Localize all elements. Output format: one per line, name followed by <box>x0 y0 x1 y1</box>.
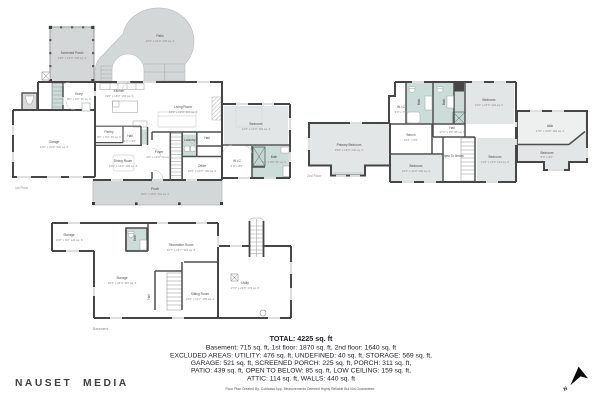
svg-text:Hall: Hall <box>127 134 133 138</box>
svg-text:Laundry: Laundry <box>184 138 196 142</box>
svg-text:Bench: Bench <box>406 133 415 137</box>
svg-text:6'0" x 9'0": 6'0" x 9'0" <box>541 155 554 159</box>
svg-text:Entry: Entry <box>75 92 83 96</box>
svg-text:Living Room: Living Room <box>174 105 192 109</box>
svg-text:8'0" x 5'0" 40 sq. ft: 8'0" x 5'0" 40 sq. ft <box>97 135 121 139</box>
svg-text:Bath: Bath <box>442 98 446 105</box>
svg-text:12'0" x 13'0" 154 sq. ft: 12'0" x 13'0" 154 sq. ft <box>242 127 271 131</box>
svg-text:5'0" x 8'0": 5'0" x 8'0" <box>231 164 244 168</box>
svg-text:19'0" x 12'0" 225 sq. ft: 19'0" x 12'0" 225 sq. ft <box>58 56 87 60</box>
svg-text:10'0" x 5'0": 10'0" x 5'0" <box>404 138 418 142</box>
svg-text:Pantry: Pantry <box>104 130 114 134</box>
svg-text:4'0" x 5'0": 4'0" x 5'0" <box>124 139 137 143</box>
svg-text:16'0" x 8'0" 124 sq. ft: 16'0" x 8'0" 124 sq. ft <box>56 238 83 242</box>
svg-text:PATIO: 439 sq. ft, OPEN TO BEL: PATIO: 439 sq. ft, OPEN TO BELOW: 85 sq.… <box>191 368 411 375</box>
svg-text:14'0" x 14'0" 196 sq. ft: 14'0" x 14'0" 196 sq. ft <box>109 164 138 168</box>
svg-text:24'0" x 20'0" 520 sq. ft: 24'0" x 20'0" 520 sq. ft <box>40 145 69 149</box>
svg-text:Sitting Room: Sitting Room <box>191 292 210 296</box>
svg-text:Garage: Garage <box>49 140 60 144</box>
svg-text:1st Floor: 1st Floor <box>15 186 29 190</box>
svg-text:Bedroom: Bedroom <box>483 98 496 102</box>
svg-text:20'0" x 21'0" 439 sq. ft: 20'0" x 21'0" 439 sq. ft <box>146 39 175 43</box>
svg-text:Storage: Storage <box>116 276 127 280</box>
svg-text:27'0" x 22'8" 476 sq. ft: 27'0" x 22'8" 476 sq. ft <box>231 286 260 290</box>
svg-text:11'0" x 13'0" 143 sq. ft: 11'0" x 13'0" 143 sq. ft <box>475 103 504 107</box>
svg-text:Foyer: Foyer <box>155 150 164 154</box>
svg-text:15'0" x 10'7" 159 sq. ft: 15'0" x 10'7" 159 sq. ft <box>186 297 215 301</box>
svg-text:ATTIC: 114 sq. ft, WALLS: 440: ATTIC: 114 sq. ft, WALLS: 440 sq. ft <box>247 375 355 382</box>
svg-text:Bedroom: Bedroom <box>410 164 423 168</box>
svg-text:Bath: Bath <box>417 98 421 105</box>
svg-text:Floor Plan Created By: Cubicas: Floor Plan Created By: Cubicasa App. Mea… <box>226 387 375 391</box>
svg-text:2nd Floor: 2nd Floor <box>307 174 322 178</box>
svg-text:6'0" x 7'0": 6'0" x 7'0" <box>395 110 408 114</box>
svg-text:Bath: Bath <box>133 234 137 241</box>
svg-text:Porch: Porch <box>151 187 160 191</box>
svg-text:GARAGE: 521 sq. ft, SCREENED P: GARAGE: 521 sq. ft, SCREENED PORCH: 225 … <box>191 360 412 367</box>
svg-text:Patio: Patio <box>156 34 163 38</box>
svg-text:Storage: Storage <box>63 233 74 237</box>
svg-text:Bedroom: Bedroom <box>250 122 263 126</box>
svg-text:12'0" x 11'0" 132 sq. ft: 12'0" x 11'0" 132 sq. ft <box>402 169 431 173</box>
svg-text:9'0" x 9'0" 81 sq. ft: 9'0" x 9'0" 81 sq. ft <box>262 160 286 164</box>
svg-text:W.I.C: W.I.C <box>233 159 241 163</box>
svg-text:Hall: Hall <box>204 136 210 140</box>
svg-text:15'0" x 18'0" 240 sq. ft: 15'0" x 18'0" 240 sq. ft <box>335 148 364 152</box>
svg-text:16'0" x 19'0" 304 sq. ft: 16'0" x 19'0" 304 sq. ft <box>169 110 198 114</box>
svg-text:Primary Bedroom: Primary Bedroom <box>337 143 362 147</box>
svg-text:22'7" x 14'7" 325 sq. ft: 22'7" x 14'7" 325 sq. ft <box>167 248 196 252</box>
svg-text:Screened Porch: Screened Porch <box>61 51 84 55</box>
svg-text:10'0" x 10'0" 100 sq. ft: 10'0" x 10'0" 100 sq. ft <box>188 169 217 173</box>
svg-text:16'4" x 24'4" 397 sq. ft: 16'4" x 24'4" 397 sq. ft <box>108 281 137 285</box>
svg-text:Hall: Hall <box>147 294 151 300</box>
svg-text:Utility: Utility <box>241 281 249 285</box>
svg-text:Dining Room: Dining Room <box>114 159 133 163</box>
svg-text:TOTAL: 4225 sq. ft: TOTAL: 4225 sq. ft <box>270 334 333 343</box>
svg-text:17'0" x 10'0" 104 sq. ft: 17'0" x 10'0" 104 sq. ft <box>536 129 565 133</box>
svg-text:EXCLUDED AREAS: UTILITY: 476 s: EXCLUDED AREAS: UTILITY: 476 sq. ft, UND… <box>170 352 432 359</box>
svg-text:Basement: Basement <box>93 327 108 331</box>
svg-text:Kitchen: Kitchen <box>114 89 125 93</box>
svg-text:6'0" x 12'0" 72 sq. ft: 6'0" x 12'0" 72 sq. ft <box>146 155 172 159</box>
svg-text:Basement: 715 sq. ft, 1st floo: Basement: 715 sq. ft, 1st floor: 1870 sq… <box>206 345 396 352</box>
svg-text:16'0" x 26'0" 311 sq. ft: 16'0" x 26'0" 311 sq. ft <box>141 192 170 196</box>
svg-text:Office: Office <box>198 164 206 168</box>
svg-text:Open To Below: Open To Below <box>442 154 464 158</box>
svg-text:11'0" x 11'0" 121 sq. ft: 11'0" x 11'0" 121 sq. ft <box>481 160 509 164</box>
svg-text:13'0" x 18'0" 160 sq. ft: 13'0" x 18'0" 160 sq. ft <box>105 94 134 98</box>
svg-text:Bath: Bath <box>271 155 278 159</box>
svg-text:17'0" x 5'0" 85 sq. ft: 17'0" x 5'0" 85 sq. ft <box>439 130 465 134</box>
svg-text:Attic: Attic <box>547 124 554 128</box>
svg-text:8'0" x 6'0" 36 sq. ft: 8'0" x 6'0" 36 sq. ft <box>67 97 91 101</box>
svg-text:W.I.C: W.I.C <box>397 105 405 109</box>
svg-text:Recreation Room: Recreation Room <box>169 243 194 247</box>
svg-text:Bedroom: Bedroom <box>489 155 502 159</box>
